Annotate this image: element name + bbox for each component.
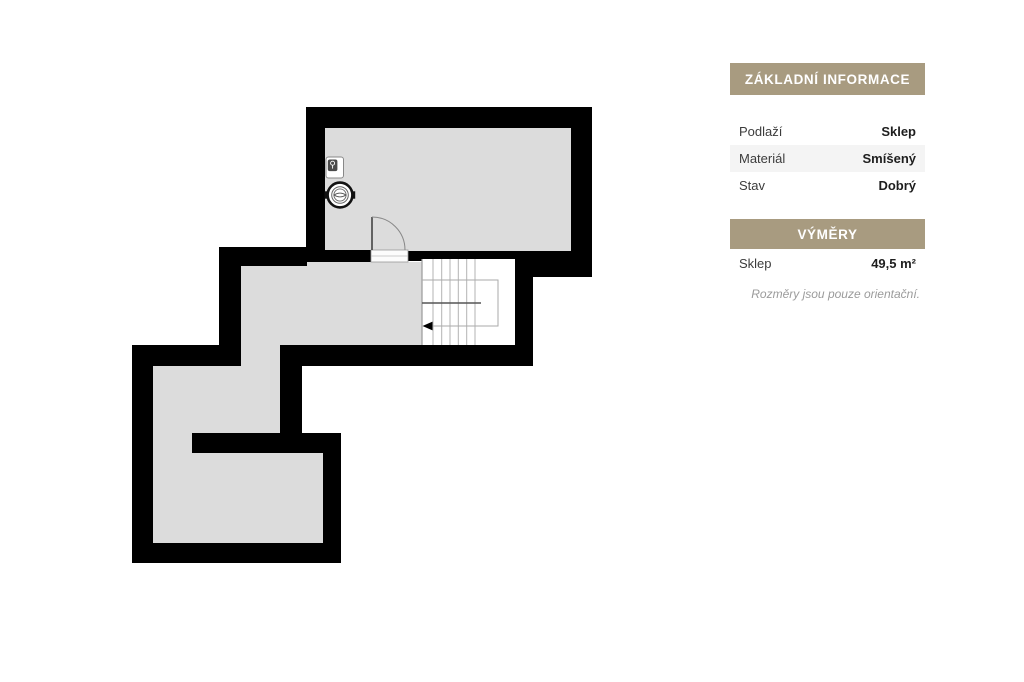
lower-room-lower-floor	[153, 453, 323, 543]
section-header-basic-info: ZÁKLADNÍ INFORMACE	[730, 63, 925, 95]
top-room-floor	[325, 128, 571, 252]
row-label: Podlaží	[739, 124, 782, 139]
table-row: Materiál Smíšený	[730, 145, 925, 172]
lower-room-upper-right-wall	[280, 345, 302, 433]
staircase	[422, 259, 515, 345]
row-label: Stav	[739, 178, 765, 193]
section-header-dimensions: VÝMĚRY	[730, 219, 925, 249]
disclaimer-note: Rozměry jsou pouze orientační.	[730, 287, 925, 301]
stair-well	[422, 259, 515, 345]
corridor-bottom-wall	[280, 345, 533, 366]
row-label: Materiál	[739, 151, 785, 166]
lower-room-left-wall	[132, 345, 153, 563]
top-room-top-wall	[306, 107, 592, 128]
lower-room-bottom-wall	[132, 543, 341, 563]
page: ZÁKLADNÍ INFORMACE Podlaží Sklep Materiá…	[0, 0, 1024, 682]
lower-room-lower-right-wall	[323, 433, 341, 563]
table-row: Sklep 49,5 m²	[730, 249, 925, 278]
table-row: Podlaží Sklep	[730, 118, 925, 145]
row-value: Sklep	[881, 124, 916, 139]
row-value: 49,5 m²	[871, 256, 916, 271]
info-panel: ZÁKLADNÍ INFORMACE Podlaží Sklep Materiá…	[730, 63, 925, 301]
row-value: Smíšený	[863, 151, 916, 166]
lower-room-left-passage	[153, 433, 192, 454]
table-row: Stav Dobrý	[730, 172, 925, 199]
top-room-left-wall	[306, 107, 325, 262]
lower-room-mid-wall	[192, 433, 341, 453]
boiler-icon	[326, 157, 344, 178]
corridor-floor	[241, 262, 422, 345]
basic-info-table: Podlaží Sklep Materiál Smíšený Stav Dobr…	[730, 118, 925, 199]
wall-left-of-door	[305, 250, 371, 262]
corridor-to-lower-passage	[241, 345, 280, 367]
row-label: Sklep	[739, 256, 772, 271]
row-value: Dobrý	[878, 178, 916, 193]
top-room-bottom-right-wall	[525, 251, 592, 277]
